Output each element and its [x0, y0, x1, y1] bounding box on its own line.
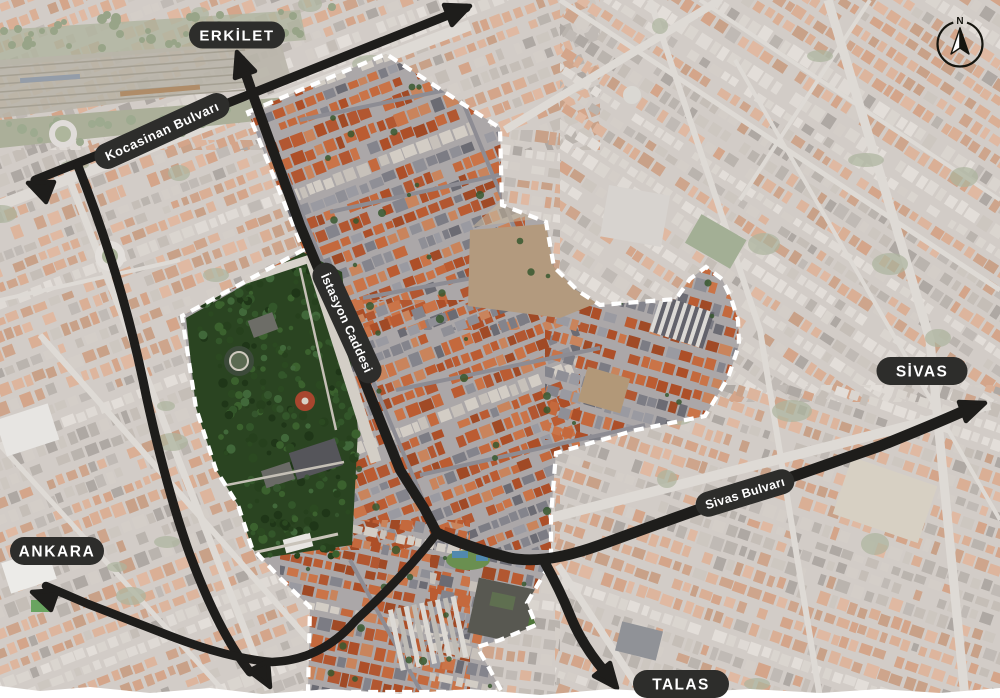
svg-text:ERKİLET: ERKİLET [199, 27, 274, 44]
svg-text:TALAS: TALAS [652, 677, 710, 694]
svg-text:N: N [956, 16, 963, 27]
svg-text:ANKARA: ANKARA [19, 544, 96, 561]
svg-text:SİVAS: SİVAS [896, 364, 948, 381]
